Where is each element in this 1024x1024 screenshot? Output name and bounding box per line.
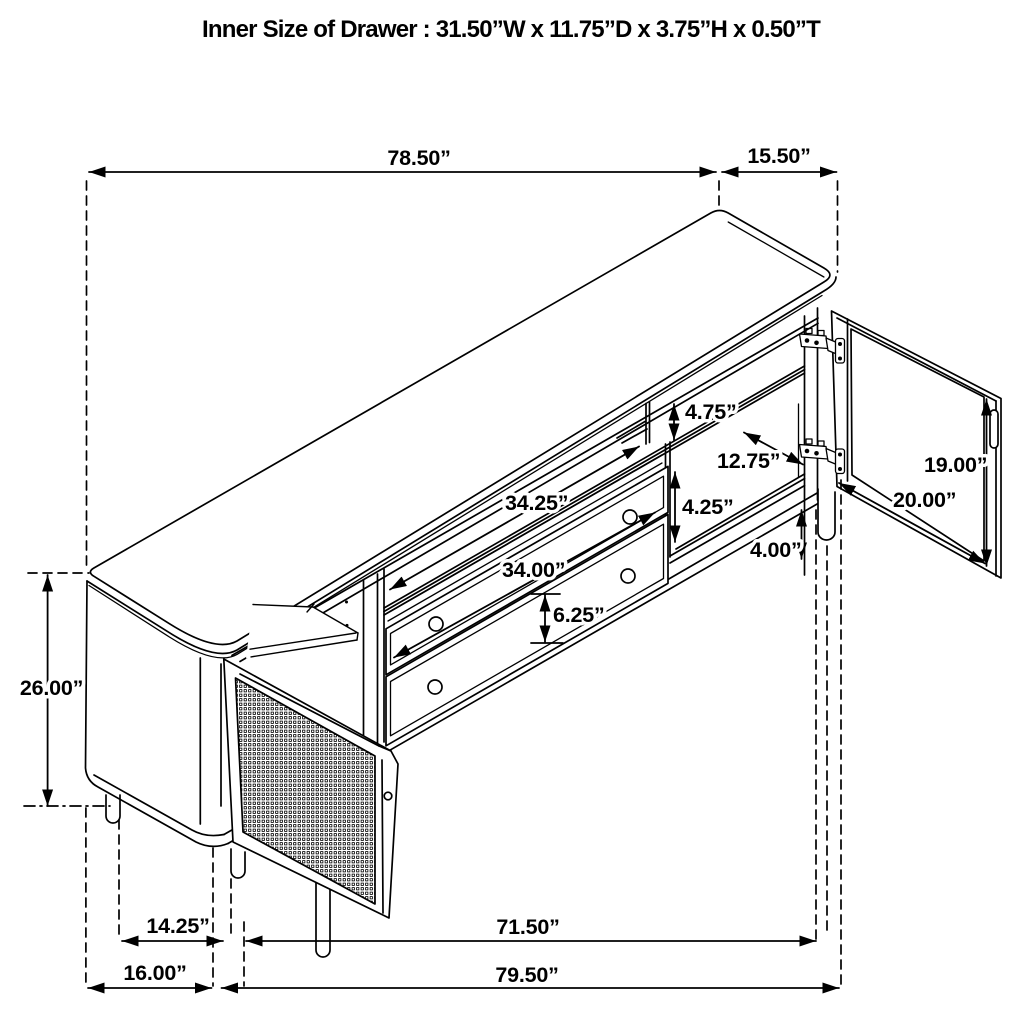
svg-text:14.25”: 14.25” bbox=[146, 914, 209, 938]
svg-text:78.50”: 78.50” bbox=[387, 146, 450, 170]
svg-text:4.00”: 4.00” bbox=[750, 538, 802, 562]
svg-text:4.75”: 4.75” bbox=[685, 400, 737, 424]
svg-text:19.00”: 19.00” bbox=[924, 453, 987, 477]
svg-text:16.00”: 16.00” bbox=[123, 961, 186, 985]
svg-text:71.50”: 71.50” bbox=[496, 915, 559, 939]
svg-text:Inner Size of Drawer : 31.50”W: Inner Size of Drawer : 31.50”W x 11.75”D… bbox=[202, 16, 821, 43]
svg-text:79.50”: 79.50” bbox=[495, 963, 558, 987]
svg-text:26.00”: 26.00” bbox=[20, 676, 83, 700]
svg-text:20.00”: 20.00” bbox=[893, 488, 956, 512]
svg-text:12.75”: 12.75” bbox=[717, 449, 780, 473]
svg-text:6.25”: 6.25” bbox=[553, 603, 605, 627]
svg-text:34.00”: 34.00” bbox=[502, 558, 565, 582]
svg-text:4.25”: 4.25” bbox=[682, 495, 734, 519]
svg-text:15.50”: 15.50” bbox=[747, 144, 810, 168]
svg-text:34.25”: 34.25” bbox=[505, 491, 568, 515]
